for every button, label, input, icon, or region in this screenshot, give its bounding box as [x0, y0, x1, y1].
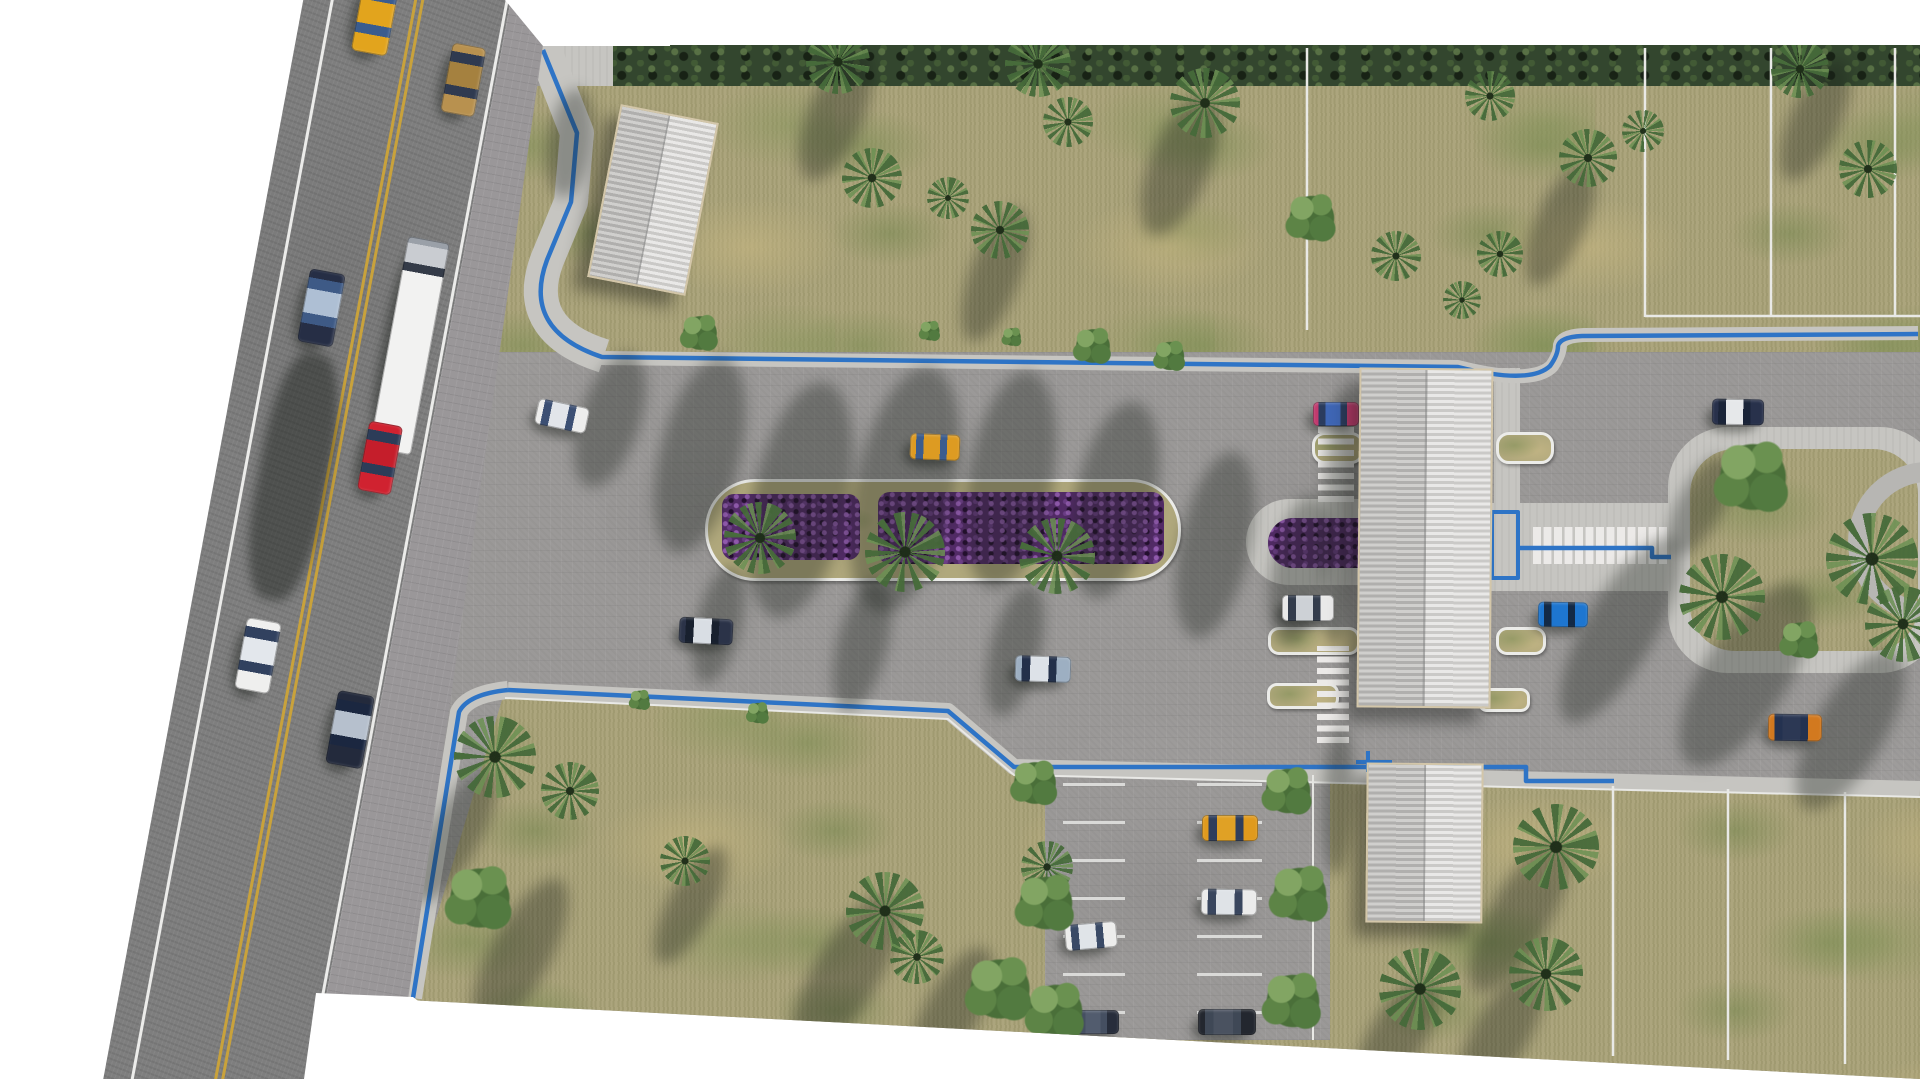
car [678, 617, 733, 646]
blue-guideline [1492, 512, 1518, 578]
canopy-roof [1357, 367, 1494, 708]
canopy-roof [1365, 762, 1483, 923]
leafy-tree [1007, 864, 1085, 942]
leafy-tree [1068, 321, 1118, 371]
car [1201, 889, 1257, 916]
car [910, 433, 961, 461]
car [1282, 595, 1334, 621]
leafy-tree [1149, 335, 1191, 377]
leafy-tree [1254, 962, 1332, 1040]
car [1768, 714, 1822, 742]
car [1538, 602, 1588, 628]
leafy-tree [1279, 185, 1345, 251]
leafy-tree [1261, 855, 1339, 933]
concrete-path [600, 333, 1918, 376]
leafy-tree [1017, 972, 1095, 1050]
car [1712, 399, 1764, 426]
leafy-tree [1704, 428, 1802, 526]
leafy-tree [1774, 614, 1826, 666]
car [1015, 655, 1072, 683]
car [1202, 815, 1258, 841]
leafy-tree [675, 308, 725, 358]
leafy-bush [999, 324, 1025, 350]
car [1313, 402, 1359, 426]
leafy-bush [626, 686, 654, 714]
leafy-tree [436, 854, 524, 942]
leafy-tree [1255, 758, 1321, 824]
leafy-bush [743, 698, 773, 728]
car [1198, 1009, 1256, 1035]
leafy-bush [916, 317, 944, 345]
aerial-site-plan-rendering [0, 0, 1920, 1079]
leafy-tree [1004, 752, 1066, 814]
